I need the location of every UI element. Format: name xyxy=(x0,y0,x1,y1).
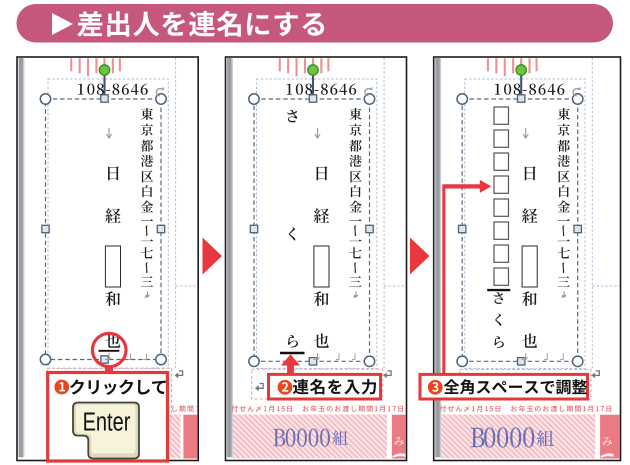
svg-text:Enter: Enter xyxy=(83,407,131,436)
